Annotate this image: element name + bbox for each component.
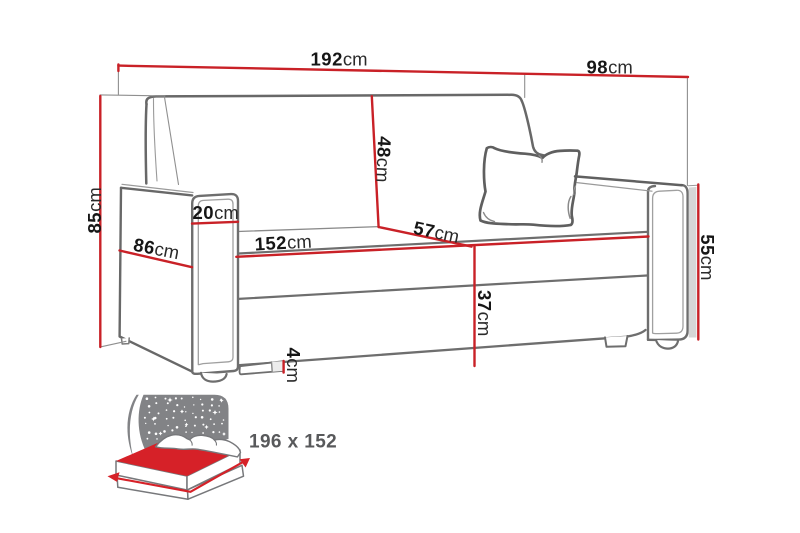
svg-text:37cm: 37cm xyxy=(474,290,495,336)
svg-text:55cm: 55cm xyxy=(697,234,718,280)
svg-text:98cm: 98cm xyxy=(587,57,633,78)
svg-text:4cm: 4cm xyxy=(283,348,304,383)
svg-text:20cm: 20cm xyxy=(193,202,239,223)
svg-text:196 x 152: 196 x 152 xyxy=(249,432,337,453)
svg-text:85cm: 85cm xyxy=(84,187,105,233)
svg-text:152cm: 152cm xyxy=(254,231,312,255)
svg-text:48cm: 48cm xyxy=(372,136,395,183)
svg-text:192cm: 192cm xyxy=(311,49,368,70)
